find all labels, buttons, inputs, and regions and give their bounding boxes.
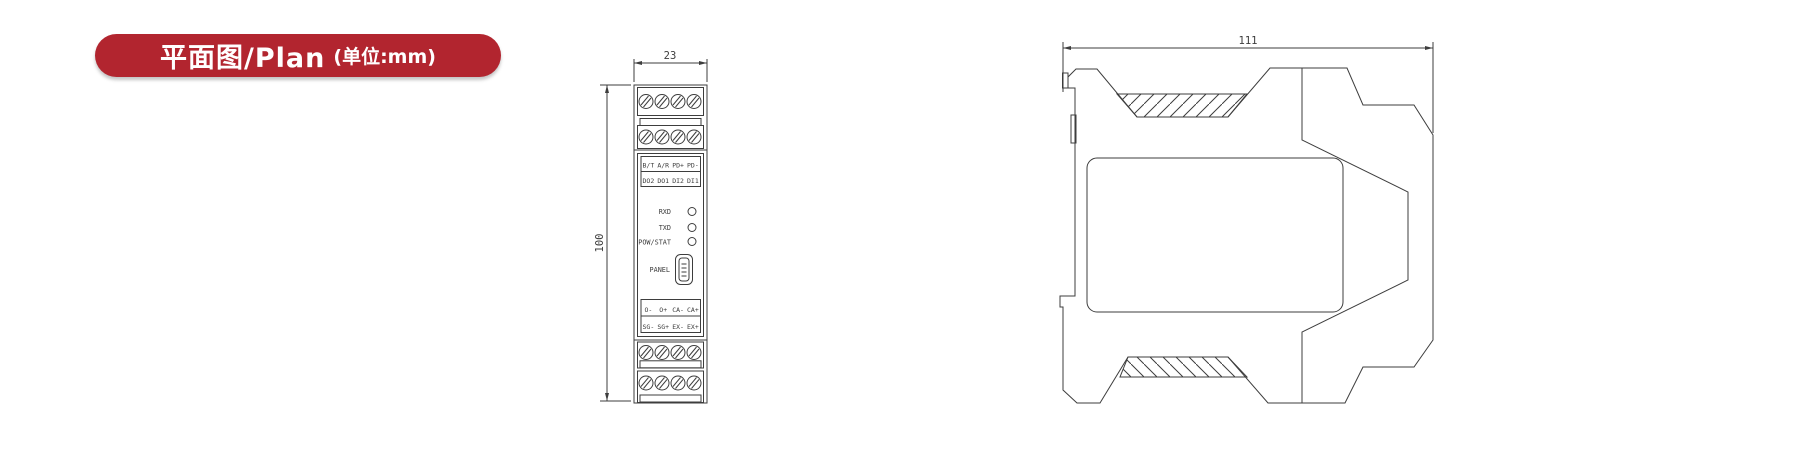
screw-terminal-icon xyxy=(671,130,685,144)
front-face-panel: B/T A/R PD+ PD- DO2 DO1 DI2 DI1 RXD TXD … xyxy=(634,150,707,340)
terminal-label: DI1 xyxy=(687,177,699,185)
terminal-label: DO1 xyxy=(657,177,669,185)
led-label-pow-stat: POW/STAT xyxy=(638,239,671,247)
terminal-cover-edge xyxy=(1302,69,1408,403)
dim-label-width: 23 xyxy=(664,50,677,62)
terminal-label: B/T xyxy=(643,162,655,170)
mini-usb-port-icon xyxy=(676,255,693,285)
panel-label: PANEL xyxy=(650,266,670,274)
face-plate-outline xyxy=(1087,158,1343,312)
screw-terminal-icon xyxy=(655,376,669,390)
screw-terminal-icon xyxy=(655,346,669,360)
terminal-label: PD+ xyxy=(672,162,684,170)
screw-terminal-icon xyxy=(687,376,701,390)
terminal-label: O+ xyxy=(659,306,667,314)
screw-terminal-icon xyxy=(655,130,669,144)
screw-terminal-icon xyxy=(687,95,701,109)
dim-label-height: 100 xyxy=(594,234,606,253)
dim-width-23: 23 xyxy=(634,50,707,82)
bottom-terminal-labels: O- O+ CA- CA+ SG- SG+ EX- EX+ xyxy=(641,300,701,333)
terminal-label: CA- xyxy=(672,306,684,314)
vent-hatch-bottom xyxy=(1120,357,1247,377)
terminal-label: A/R xyxy=(657,162,669,170)
panel-port: PANEL xyxy=(650,255,693,285)
screw-terminal-icon xyxy=(655,95,669,109)
led-indicators: RXD TXD POW/STAT xyxy=(638,208,696,247)
led-indicator-icon xyxy=(688,238,696,246)
terminal-label: PD- xyxy=(687,162,699,170)
terminal-label: CA+ xyxy=(687,306,699,314)
side-view-drawing: 111 xyxy=(1060,35,1433,403)
front-view-drawing: 23 100 xyxy=(594,50,707,403)
screw-terminal-icon xyxy=(687,346,701,360)
screw-terminal-icon xyxy=(687,130,701,144)
terminal-label: EX+ xyxy=(687,323,699,331)
terminal-label: SG+ xyxy=(657,323,669,331)
led-indicator-icon xyxy=(688,208,696,216)
terminal-block-top-1 xyxy=(638,88,704,116)
terminal-label: DI2 xyxy=(672,177,684,185)
terminal-label: SG- xyxy=(643,323,655,331)
led-label-txd: TXD xyxy=(659,224,671,232)
screw-terminal-icon xyxy=(639,130,653,144)
terminal-block-bottom-2 xyxy=(638,371,704,403)
plan-drawing-page: 平面图/Plan (单位:mm) xyxy=(0,0,1814,454)
screw-terminal-icon xyxy=(671,376,685,390)
terminal-label: DO2 xyxy=(643,177,655,185)
dim-width-111: 111 xyxy=(1063,35,1433,133)
screw-terminal-icon xyxy=(639,346,653,360)
vent-hatch-top xyxy=(1117,94,1247,117)
top-terminal-labels: B/T A/R PD+ PD- DO2 DO1 DI2 DI1 xyxy=(641,157,701,187)
dim-label-side-width: 111 xyxy=(1239,35,1258,47)
terminal-label: EX- xyxy=(672,323,684,331)
din-clip xyxy=(1063,73,1077,143)
led-indicator-icon xyxy=(688,224,696,232)
terminal-label: O- xyxy=(644,306,652,314)
screw-terminal-icon xyxy=(671,346,685,360)
side-profile-outline xyxy=(1060,68,1433,403)
screw-terminal-icon xyxy=(671,95,685,109)
terminal-block-bottom-1 xyxy=(638,342,704,368)
dim-height-100: 100 xyxy=(594,85,631,401)
led-label-rxd: RXD xyxy=(659,208,671,216)
terminal-block-top-2 xyxy=(638,119,704,149)
technical-drawing: 23 100 xyxy=(0,0,1814,454)
screw-terminal-icon xyxy=(639,376,653,390)
screw-terminal-icon xyxy=(639,95,653,109)
